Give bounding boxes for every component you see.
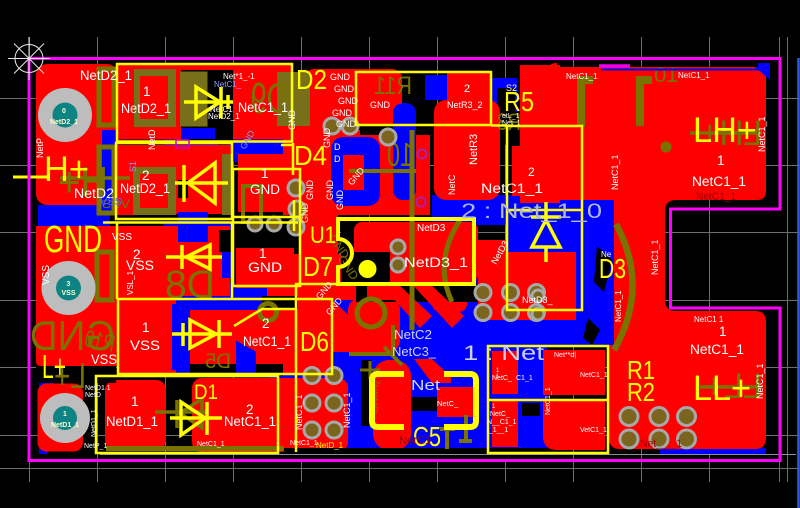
svg-text:Net_1: Net_1: [502, 120, 521, 127]
svg-text:NetC1_1: NetC1_1: [580, 372, 608, 379]
svg-text:Net__,_1: Net__,_1: [640, 438, 682, 450]
svg-text:S1: S1: [128, 161, 138, 172]
svg-text:NetC1_1: NetC1_1: [690, 342, 744, 357]
svg-text:NetC1_1: NetC1_1: [610, 154, 620, 190]
svg-text:VSS: VSS: [126, 258, 154, 273]
svg-text:VSS: VSS: [91, 352, 117, 367]
svg-text:GND: GND: [330, 72, 351, 82]
svg-text:NetC1: NetC1: [399, 435, 431, 447]
svg-text:NetP_1: NetP_1: [84, 443, 107, 450]
svg-text:1: 1: [261, 166, 269, 181]
svg-text:1 : Net: 1 : Net: [463, 342, 544, 365]
svg-text:1: 1: [259, 246, 267, 261]
svg-text:0: 0: [62, 108, 66, 115]
svg-text:NetC1_1: NetC1_1: [238, 100, 288, 115]
svg-text:NetC1_1: NetC1_1: [678, 71, 710, 80]
svg-text:NetC1_1: NetC1_1: [197, 441, 225, 448]
svg-text:D9: D9: [251, 74, 288, 123]
svg-text:Ne: Ne: [601, 250, 612, 259]
svg-text:NetC1_1: NetC1_1: [696, 191, 736, 203]
svg-text:Net**d|: Net**d|: [554, 352, 576, 359]
svg-text:NetC1_1: NetC1_1: [224, 414, 276, 429]
svg-text:NetC1_1: NetC1_1: [545, 387, 552, 415]
svg-text:D6: D6: [300, 326, 329, 357]
svg-text:GND: GND: [334, 84, 355, 94]
svg-text:N__C1_1: N__C1_1: [487, 419, 517, 426]
svg-text:NetD2_1: NetD2_1: [120, 181, 170, 196]
svg-text:NetC1_1: NetC1_1: [294, 394, 304, 430]
svg-text:GND: GND: [338, 96, 359, 106]
svg-text:NetC1_1: NetC1_1: [757, 116, 767, 152]
svg-text:NetD_1: NetD_1: [316, 441, 344, 450]
svg-text:VSS: VSS: [41, 265, 52, 285]
svg-text:S2: S2: [506, 83, 517, 93]
svg-text:VSS: VSS: [100, 196, 122, 208]
svg-text:1: 1: [717, 153, 725, 168]
svg-text:NetD1_1: NetD1_1: [51, 422, 79, 429]
svg-text:NetC1_1: NetC1_1: [243, 334, 291, 349]
svg-text:NetC: NetC: [447, 174, 457, 195]
svg-text:NetD1 1: NetD1 1: [85, 385, 111, 392]
svg-text:|_1__1: |_1__1: [487, 427, 508, 434]
svg-text:NetD: NetD: [85, 392, 101, 399]
svg-text:NetR3_2: NetR3_2: [447, 100, 483, 110]
svg-text:NetC_: NetC_: [437, 399, 459, 408]
svg-text:2: 2: [464, 83, 470, 95]
svg-text:NetD1_1: NetD1_1: [91, 409, 98, 437]
svg-text:NetC1_1: NetC1_1: [755, 363, 765, 399]
svg-text:D: D: [334, 154, 341, 164]
svg-text:D: D: [334, 142, 341, 152]
svg-text:GND: GND: [322, 128, 332, 149]
svg-text:GND: GND: [325, 180, 335, 201]
svg-text:LH+: LH+: [693, 111, 757, 150]
svg-text:D1: D1: [194, 381, 218, 404]
svg-text:2: 2: [528, 165, 535, 179]
svg-text:VetC1_1: VetC1_1: [580, 427, 607, 434]
svg-text:NetC2: NetC2: [394, 327, 432, 342]
svg-text:NetC1_1: NetC1_1: [342, 392, 352, 428]
svg-text:GND: GND: [332, 108, 353, 118]
svg-text:NetR3: NetR3: [468, 134, 480, 165]
svg-text:Net: Net: [411, 377, 441, 394]
svg-text:GND: GND: [335, 190, 345, 211]
svg-text:VSS: VSS: [112, 232, 132, 243]
svg-text:etL_1: etL_1: [502, 113, 520, 120]
svg-text:NetC1_1: NetC1_1: [614, 290, 623, 322]
svg-text:2 : Net_1_0: 2 : Net_1_0: [461, 200, 602, 223]
svg-text:NetC_: NetC_: [490, 411, 510, 418]
svg-text:D2: D2: [296, 64, 327, 95]
svg-text:1: 1: [142, 320, 150, 335]
svg-text:VSL_1: VSL_1: [126, 270, 135, 295]
svg-text:NetC1_1: NetC1_1: [650, 239, 660, 275]
svg-text:NetD2_1: NetD2_1: [50, 119, 78, 126]
svg-text:NetC3_: NetC3_: [392, 344, 437, 359]
svg-text:NetC1_1: NetC1_1: [481, 181, 543, 196]
svg-text:NetD: NetD: [147, 129, 157, 150]
svg-text:VSS: VSS: [61, 290, 75, 297]
svg-text:NetC1_1: NetC1_1: [290, 440, 318, 447]
svg-text:NetD3_1: NetD3_1: [404, 254, 468, 270]
svg-text:1: 1: [719, 324, 727, 339]
svg-text:NetC1_: NetC1_: [214, 80, 242, 89]
svg-text:NetD1_1: NetD1_1: [106, 414, 158, 429]
svg-text:C1_1: C1_1: [516, 375, 533, 382]
svg-text:U1: U1: [310, 222, 336, 249]
svg-text:GND: GND: [336, 119, 357, 129]
svg-text:NetC1_1: NetC1_1: [566, 72, 598, 81]
svg-text:NetD2_1: NetD2_1: [121, 101, 171, 116]
svg-text:NetC1_1: NetC1_1: [692, 174, 746, 189]
svg-text:NetD3: NetD3: [417, 223, 446, 234]
svg-text:NetD3_: NetD3_: [522, 295, 554, 305]
svg-text:3: 3: [67, 281, 71, 288]
svg-text:R2: R2: [627, 377, 655, 407]
svg-text:NetC1 1: NetC1 1: [694, 315, 724, 324]
svg-text:10: 10: [654, 64, 679, 87]
svg-text:LL+: LL+: [693, 369, 751, 408]
svg-text:H+: H+: [44, 150, 89, 189]
svg-text:GND: GND: [250, 182, 280, 197]
svg-text:1: 1: [131, 394, 139, 409]
svg-text:GND: GND: [370, 100, 391, 110]
svg-text:NetD2_1: NetD2_1: [208, 112, 240, 121]
svg-text:1: 1: [143, 84, 151, 99]
svg-text:NetC_: NetC_: [492, 375, 512, 382]
svg-text:GND: GND: [44, 219, 102, 261]
svg-text:GND: GND: [287, 110, 297, 131]
svg-text:1: 1: [63, 411, 67, 418]
svg-text:NetD2_1: NetD2_1: [80, 68, 132, 83]
svg-text:R11: R11: [374, 72, 412, 100]
svg-text:NetP: NetP: [35, 138, 45, 158]
svg-text:GND: GND: [248, 260, 282, 275]
svg-text:D7: D7: [303, 251, 333, 282]
svg-text:L+: L+: [42, 348, 66, 385]
svg-text:GND: GND: [300, 203, 310, 224]
svg-text:D5: D5: [205, 350, 231, 373]
svg-text:2: 2: [262, 316, 270, 331]
svg-text:VSS: VSS: [130, 338, 160, 353]
svg-text:GND: GND: [305, 180, 315, 201]
